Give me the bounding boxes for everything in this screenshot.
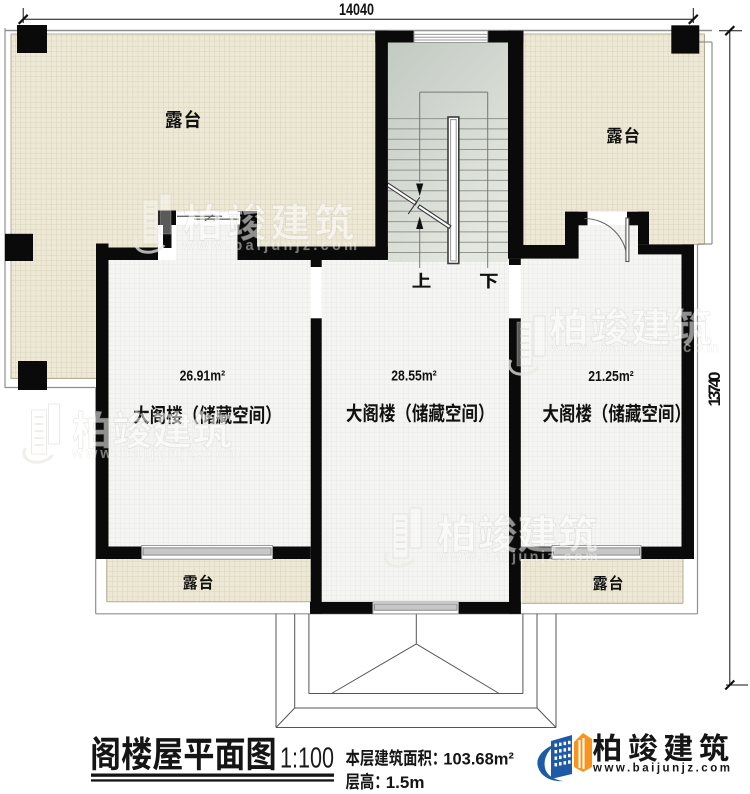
svg-text:14040: 14040: [339, 0, 374, 19]
svg-text:103.68m²: 103.68m²: [443, 751, 514, 769]
svg-text:1:100: 1:100: [280, 743, 334, 775]
svg-text:26.91m²: 26.91m²: [180, 368, 226, 384]
svg-text:21.25m²: 21.25m²: [588, 369, 634, 385]
svg-text:1.5m: 1.5m: [386, 773, 425, 792]
svg-text:13740: 13740: [705, 372, 724, 407]
svg-text:28.55m²: 28.55m²: [391, 369, 437, 385]
